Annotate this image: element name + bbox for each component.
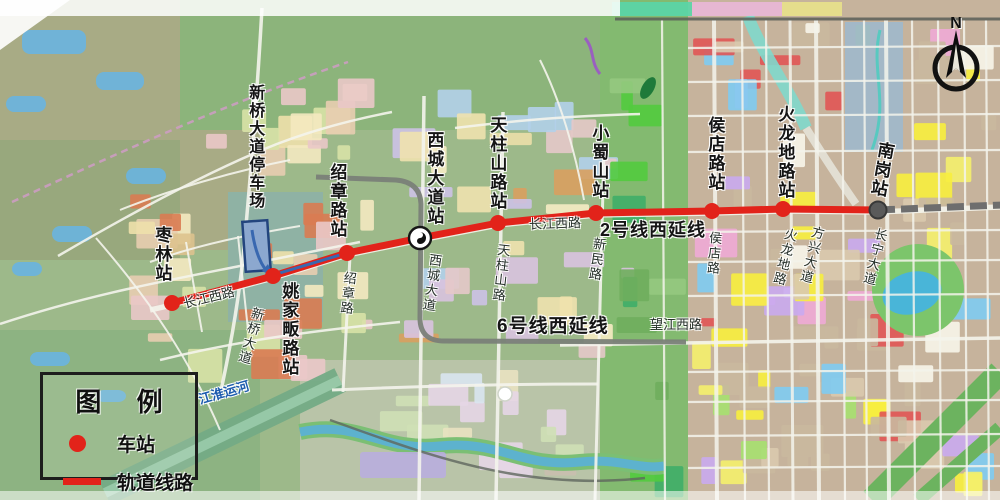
legend-line-label: 轨道线路 [117,468,193,495]
station-label: 侯店路站 [705,116,723,192]
legend-row-line: 轨道线路 [63,468,195,495]
legend-title: 图 例 [43,382,195,419]
station-dot-icon [69,435,86,452]
legend-box: 图 例 车站 轨道线路 [40,372,198,480]
line2-extension-label: 2号线西延线 [600,221,706,240]
road-label: 长宁大道 [860,226,888,288]
road-label: 火龙地路 [770,226,798,288]
road-label: 长江西路 [529,216,581,232]
station-label: 绍章路站 [327,163,345,239]
station-label: 南岗站 [866,140,894,199]
compass-icon: N [922,8,994,110]
station-label: 姚家畈路站 [279,282,297,377]
road-label: 西城大道 [420,252,442,313]
depot-label: 新桥大道停车场 [246,84,263,210]
station-label: 枣林站 [152,226,170,283]
rail-line-icon [63,478,101,485]
legend-row-station: 车站 [63,430,195,457]
station-label: 小蜀山站 [589,124,607,200]
station-label: 天柱山路站 [487,116,505,211]
line6-extension-label: 6号线西延线 [497,317,609,338]
road-label: 新民路 [586,236,606,283]
road-label: 新桥大道 [235,305,265,367]
canal-label: 江淮运河 [197,379,251,407]
road-label: 天柱山路 [490,242,510,303]
road-label: 望江西路 [650,318,702,332]
legend-station-label: 车站 [117,430,155,457]
planning-map: 枣林站姚家畈路站绍章路站西城大道站天柱山路站小蜀山站侯店路站火龙地路站南岗站新桥… [0,0,1000,500]
compass-n-label: N [950,15,962,32]
station-label: 西城大道站 [424,131,442,226]
legend-symbol-wrap [63,435,105,452]
road-label: 绍章路 [338,270,357,316]
station-label: 火龙地路站 [775,105,793,200]
road-label: 侯店路 [704,231,721,277]
road-label: 方兴大道 [797,224,825,286]
legend-symbol-wrap [63,478,105,485]
road-label: 长江西路 [182,285,236,311]
